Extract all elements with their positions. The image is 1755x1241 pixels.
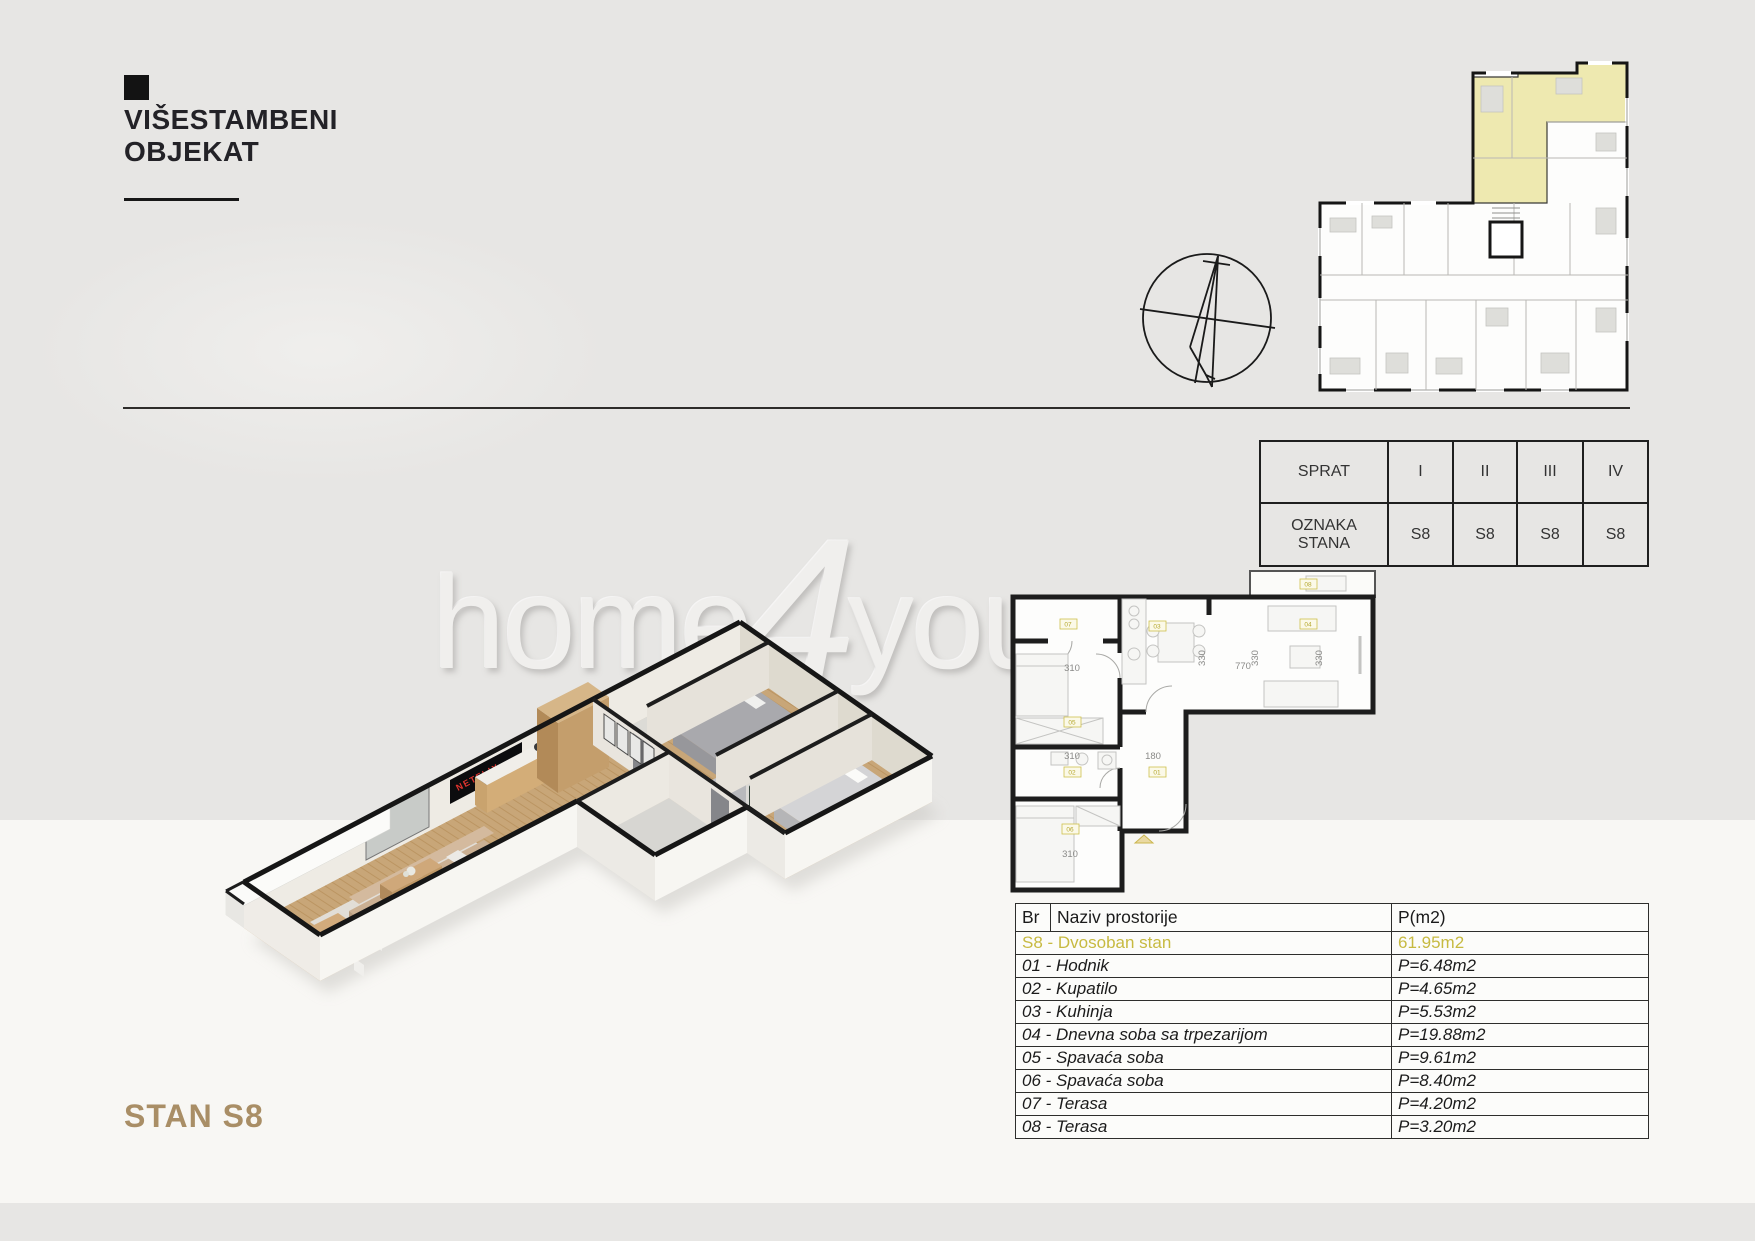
unit-ii: S8 (1453, 503, 1517, 566)
brochure-page: VIŠESTAMBENI OBJEKAT home 4 you me (0, 0, 1755, 1241)
building-key-plan (1316, 58, 1636, 398)
svg-text:04: 04 (1304, 622, 1312, 629)
floor-iv: IV (1583, 441, 1648, 503)
svg-text:330: 330 (1314, 650, 1325, 666)
black-square-decoration (124, 75, 149, 100)
table-row: 01 - Hodnik P=6.48m2 (1016, 955, 1649, 978)
render-3d: NETFLIX (50, 614, 950, 1124)
col-naziv: Naziv prostorije (1051, 904, 1392, 932)
table-row: 03 - Kuhinja P=5.53m2 (1016, 1001, 1649, 1024)
unit-iii: S8 (1517, 503, 1583, 566)
table-row: 06 - Spavaća soba P=8.40m2 (1016, 1070, 1649, 1093)
unit-iv: S8 (1583, 503, 1648, 566)
col-pm2: P(m2) (1392, 904, 1649, 932)
svg-text:180: 180 (1145, 751, 1161, 762)
svg-text:03: 03 (1153, 624, 1161, 631)
col-br: Br (1016, 904, 1051, 932)
svg-text:330: 330 (1197, 650, 1208, 666)
elevator-core (1490, 222, 1522, 257)
table-row: 02 - Kupatilo P=4.65m2 (1016, 978, 1649, 1001)
svg-text:02: 02 (1068, 770, 1076, 777)
page-title-line1: VIŠESTAMBENI (124, 104, 338, 136)
title-underline (124, 198, 239, 201)
table-row: 07 - Terasa P=4.20m2 (1016, 1093, 1649, 1116)
floor-designation-table: SPRAT I II III IV OZNAKA STANA S8 S8 S8 … (1259, 440, 1649, 567)
svg-text:07: 07 (1064, 622, 1072, 629)
north-compass (1136, 248, 1284, 396)
svg-text:01: 01 (1153, 770, 1161, 777)
floor-ii: II (1453, 441, 1517, 503)
svg-text:08: 08 (1304, 582, 1312, 589)
entrance-marker (1135, 835, 1153, 843)
horizontal-divider (123, 407, 1630, 409)
svg-text:310: 310 (1064, 751, 1080, 762)
svg-text:770: 770 (1235, 661, 1251, 672)
table-row: 04 - Dnevna soba sa trpezarijom P=19.88m… (1016, 1024, 1649, 1047)
floor-i: I (1388, 441, 1453, 503)
table-row: 05 - Spavaća soba P=9.61m2 (1016, 1047, 1649, 1070)
svg-text:06: 06 (1066, 827, 1074, 834)
page-title-line2: OBJEKAT (124, 136, 338, 168)
svg-text:330: 330 (1250, 650, 1261, 666)
faint-logo-ghost (30, 215, 610, 485)
sprat-label: SPRAT (1260, 441, 1388, 503)
table-row-s8: S8 - Dvosoban stan 61.95m2 (1016, 932, 1649, 955)
floor-iii: III (1517, 441, 1583, 503)
page-title: VIŠESTAMBENI OBJEKAT (124, 104, 338, 168)
svg-text:05: 05 (1068, 720, 1076, 727)
table-row: 08 - Terasa P=3.20m2 (1016, 1116, 1649, 1139)
svg-text:310: 310 (1064, 663, 1080, 674)
unit-i: S8 (1388, 503, 1453, 566)
oznaka-stana-label: OZNAKA STANA (1260, 503, 1388, 566)
svg-text:310: 310 (1062, 849, 1078, 860)
floor-plan-2d: 310 330 770 330 330 310 180 310 07 05 02… (1006, 566, 1386, 902)
room-area-table: Br Naziv prostorije P(m2) S8 - Dvosoban … (1015, 903, 1649, 1139)
